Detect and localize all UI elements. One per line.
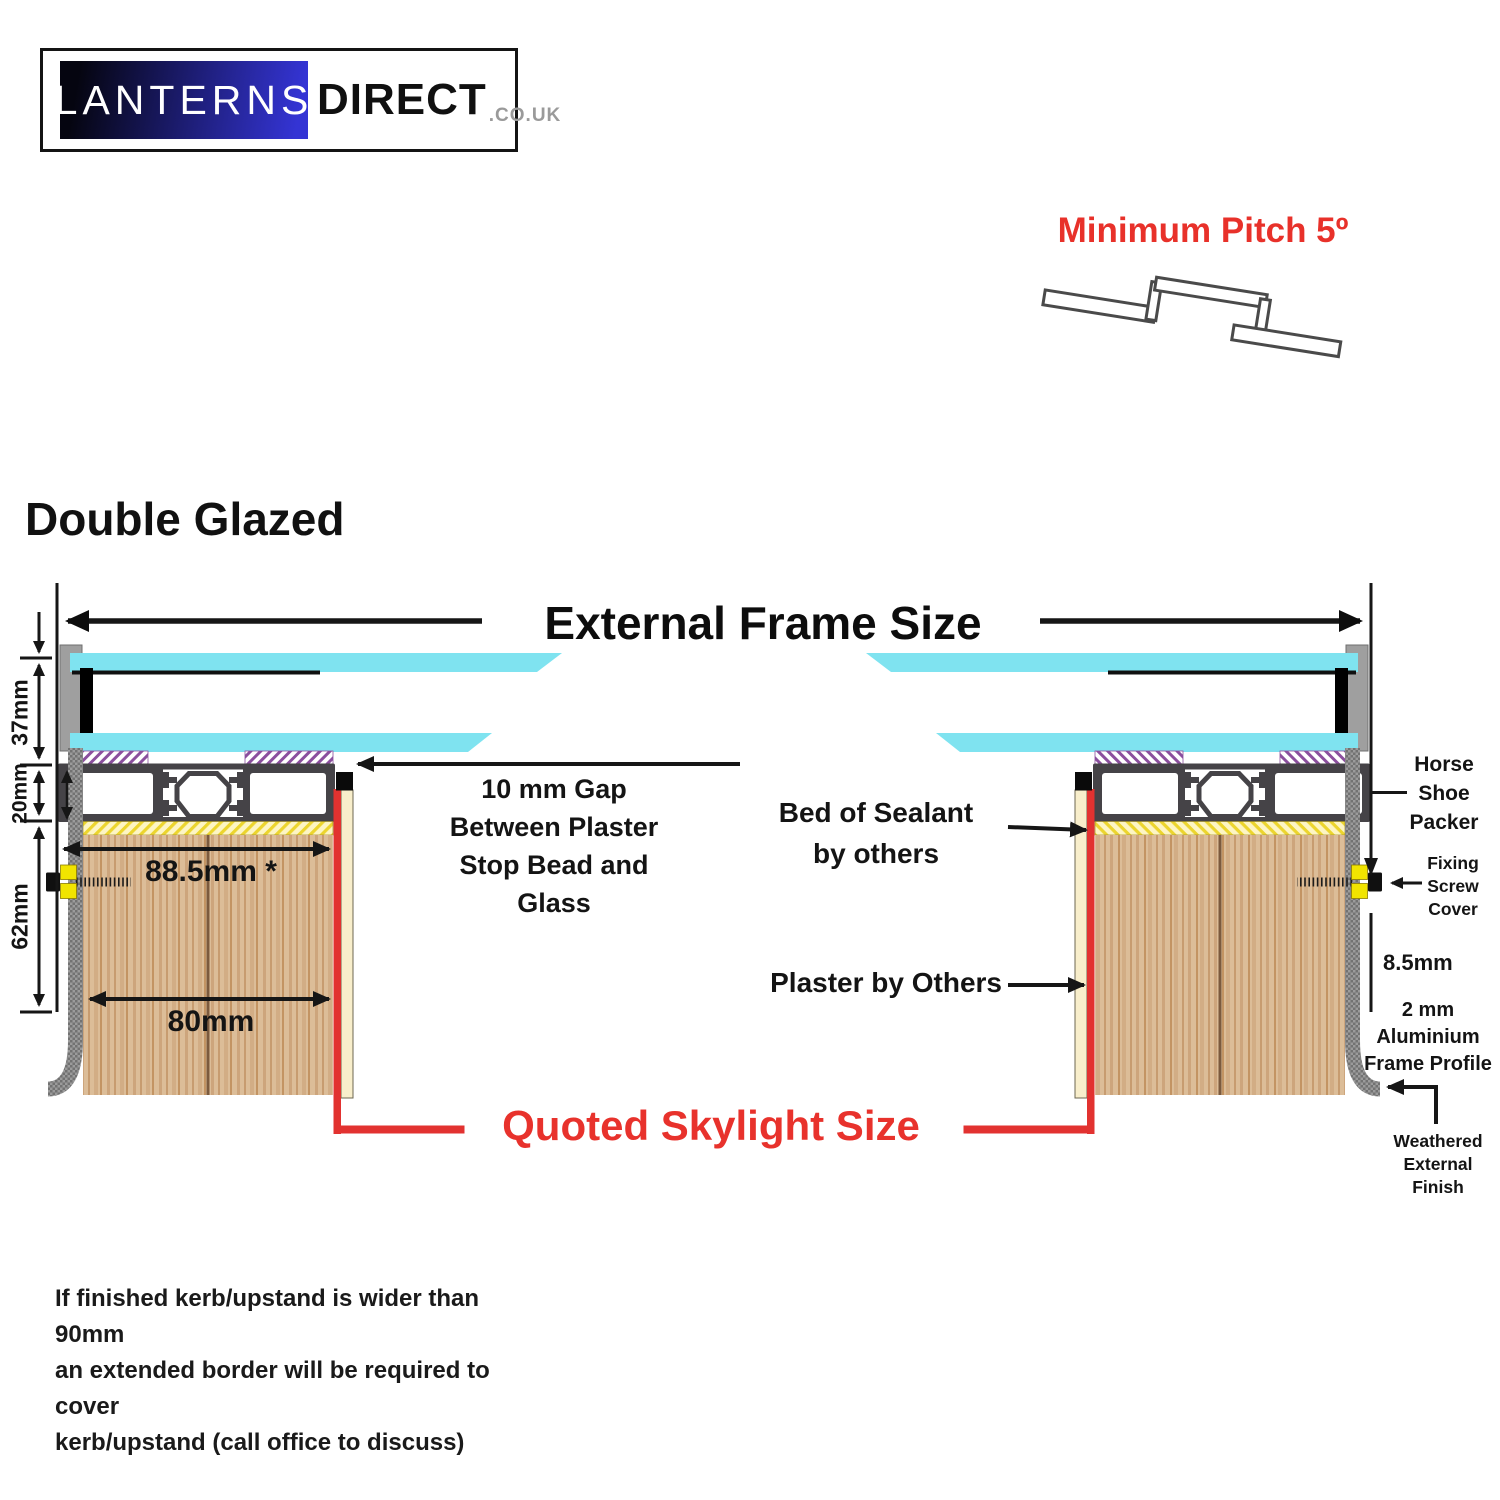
minimum-pitch-label: Minimum Pitch 5º bbox=[1027, 211, 1379, 251]
right-section bbox=[866, 645, 1382, 1134]
dim-88-5mm-label: 88.5mm * bbox=[95, 855, 327, 889]
dim-62mm-label: 62mm bbox=[8, 879, 33, 955]
extension-line-left bbox=[56, 583, 59, 1012]
logo-gradient-box: LANTERNS bbox=[60, 61, 308, 139]
logo-suffix-text: .co.uk bbox=[489, 105, 562, 127]
bed-of-sealant-annotation: Bed of Sealant by others bbox=[745, 792, 1007, 874]
kerb-note: If finished kerb/upstand is wider than 9… bbox=[55, 1281, 555, 1461]
horse-shoe-packer-annotation: Horse Shoe Packer bbox=[1396, 750, 1492, 837]
logo-direct-text: DIRECT bbox=[317, 75, 487, 125]
dim-37mm-label: 37mm bbox=[8, 675, 33, 751]
page: { "logo": { "lanterns": "LANTERNS", "dir… bbox=[0, 0, 1500, 1500]
page-title: Double Glazed bbox=[25, 492, 344, 546]
logo: LANTERNS DIRECT .co.uk bbox=[40, 48, 518, 152]
quoted-skylight-size-label: Quoted Skylight Size bbox=[452, 1102, 970, 1150]
dim-80mm-label: 80mm bbox=[95, 1005, 327, 1039]
fixing-screw-cover-annotation: Fixing Screw Cover bbox=[1405, 852, 1500, 921]
gap-annotation: 10 mm Gap Between Plaster Stop Bead and … bbox=[388, 770, 720, 922]
external-frame-size-label: External Frame Size bbox=[487, 596, 1039, 650]
plaster-annotation: Plaster by Others bbox=[702, 967, 1002, 999]
logo-lanterns-text: LANTERNS bbox=[55, 77, 314, 124]
sealant-leader-arrow bbox=[1008, 827, 1086, 830]
weathered-finish-annotation: Weathered External Finish bbox=[1389, 1130, 1487, 1199]
aluminium-profile-annotation: 2 mm Aluminium Frame Profile bbox=[1352, 997, 1500, 1078]
extension-line-right bbox=[1370, 583, 1373, 858]
dim-20mm-label: 20mm bbox=[8, 756, 33, 832]
weathered-leader-arrow bbox=[1388, 1087, 1436, 1124]
dim-8-5mm-label: 8.5mm bbox=[1383, 950, 1453, 976]
pitch-diagram bbox=[1042, 260, 1346, 356]
